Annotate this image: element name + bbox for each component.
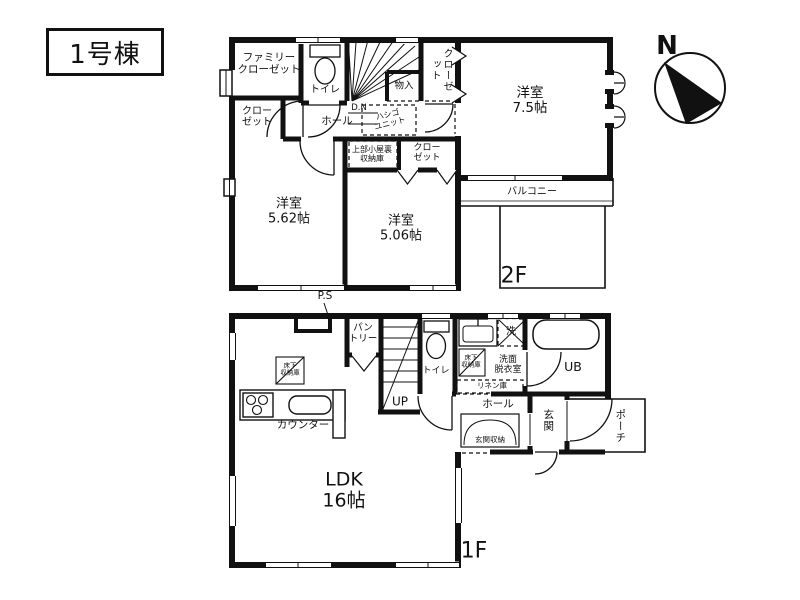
f1-walls: [229, 313, 608, 568]
f2-dashed: [349, 101, 455, 169]
f2-walls: [229, 37, 613, 291]
closet-nook-door: [425, 104, 453, 132]
linen-dashed-box: [457, 380, 523, 393]
north-arrow-icon: [655, 53, 725, 124]
room562-door: [300, 141, 334, 175]
entrance-door: [570, 399, 612, 441]
f1-stairs: [381, 321, 420, 409]
bifold-v-icon: [397, 170, 418, 184]
entrance-storage-cabinet: [461, 414, 519, 447]
floorplan-drawing: [0, 0, 800, 600]
north-label: N: [656, 31, 678, 61]
f2-toilet-door: [308, 105, 340, 137]
f1-toilet-door: [418, 396, 452, 430]
f1-toilet-icon: [424, 321, 449, 359]
kitchen-counter: [240, 390, 345, 438]
bath-door: [527, 352, 561, 386]
side-door: [535, 452, 557, 474]
f2-stairs: [348, 40, 419, 124]
f1-windows: [229, 313, 581, 569]
attic-storage-dashed-box: [349, 141, 397, 169]
washroom-fixtures: [459, 319, 526, 346]
building-title: 1号棟: [46, 28, 164, 76]
bifold-v-icon: [437, 170, 457, 184]
f2-balcony-outline: [458, 178, 613, 288]
f2-toilet-icon: [310, 45, 340, 84]
pantry-bifold-icon: [352, 356, 376, 371]
f1-porch-outline: [530, 399, 645, 452]
ladder-unit-dashed-box: [362, 105, 416, 135]
floorplan-page: 1号棟 N ファミリー クローゼット クロー ゼット トイレ 物入 クローゼット…: [0, 0, 800, 600]
washer-x-icon: [498, 319, 526, 346]
bathtub-icon: [533, 320, 599, 349]
sink-icon: [289, 396, 331, 414]
